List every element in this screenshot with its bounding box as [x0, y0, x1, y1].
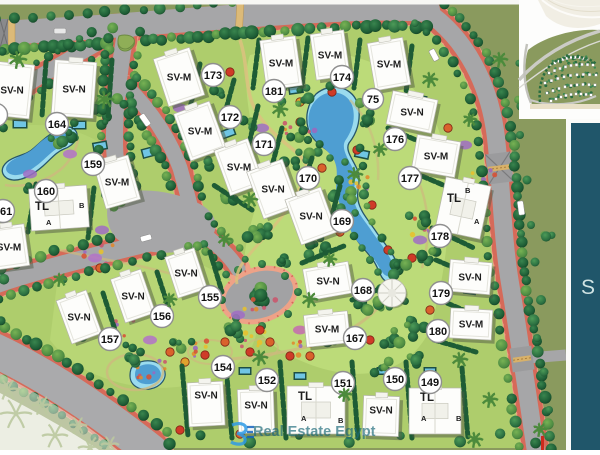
- svg-text:151: 151: [334, 378, 352, 390]
- svg-text:A: A: [474, 217, 480, 226]
- svg-text:SV-N: SV-N: [174, 269, 197, 280]
- svg-text:179: 179: [432, 288, 450, 300]
- svg-text:SV-N: SV-N: [400, 108, 423, 119]
- svg-text:SV-N: SV-N: [261, 185, 284, 196]
- svg-text:SV-M: SV-M: [377, 60, 401, 71]
- svg-text:B: B: [465, 186, 471, 195]
- svg-text:SV-M: SV-M: [424, 152, 448, 163]
- svg-text:SV-M: SV-M: [269, 59, 293, 70]
- svg-text:174: 174: [333, 72, 352, 84]
- svg-text:155: 155: [201, 292, 219, 304]
- svg-text:177: 177: [401, 173, 419, 185]
- svg-text:B: B: [456, 414, 462, 423]
- svg-text:171: 171: [255, 139, 273, 151]
- svg-text:SV-N: SV-N: [121, 292, 144, 303]
- svg-text:SV-N: SV-N: [458, 273, 481, 284]
- svg-text:169: 169: [333, 216, 351, 228]
- svg-text:172: 172: [221, 112, 239, 124]
- svg-text:S: S: [581, 276, 595, 299]
- svg-text:TL: TL: [447, 193, 461, 205]
- svg-text:SV-N: SV-N: [369, 406, 392, 417]
- svg-text:154: 154: [214, 362, 233, 374]
- svg-text:SV-N: SV-N: [244, 401, 267, 412]
- svg-text:B: B: [79, 201, 85, 210]
- svg-text:157: 157: [101, 334, 119, 346]
- svg-text:170: 170: [299, 173, 317, 185]
- svg-text:Real Estate Egypt: Real Estate Egypt: [253, 424, 376, 440]
- svg-text:TL: TL: [298, 391, 312, 403]
- svg-text:181: 181: [265, 86, 283, 98]
- svg-text:SV-M: SV-M: [188, 127, 212, 138]
- svg-text:SV-M: SV-M: [459, 320, 483, 331]
- svg-text:SV-M: SV-M: [167, 73, 191, 84]
- svg-text:SV-N: SV-N: [316, 277, 339, 288]
- svg-text:167: 167: [346, 333, 364, 345]
- svg-text:176: 176: [386, 134, 404, 146]
- svg-text:SV-N: SV-N: [194, 391, 217, 402]
- svg-text:152: 152: [258, 375, 276, 387]
- svg-text:160: 160: [37, 186, 55, 198]
- svg-text:A: A: [301, 414, 307, 423]
- svg-text:150: 150: [386, 374, 404, 386]
- svg-text:SV-N: SV-N: [67, 313, 90, 324]
- svg-text:SV-N: SV-N: [62, 85, 85, 96]
- svg-text:156: 156: [153, 311, 171, 323]
- svg-text:SV-M: SV-M: [0, 243, 21, 254]
- svg-text:173: 173: [204, 70, 222, 82]
- svg-text:180: 180: [429, 326, 447, 338]
- svg-text:149: 149: [421, 377, 439, 389]
- svg-text:SV-M: SV-M: [315, 325, 339, 336]
- svg-text:164: 164: [48, 119, 67, 131]
- svg-text:SV-M: SV-M: [105, 178, 129, 189]
- svg-text:A: A: [421, 414, 427, 423]
- svg-text:SV-M: SV-M: [318, 51, 342, 62]
- svg-text:SV-N: SV-N: [299, 212, 322, 223]
- svg-text:SV-N: SV-N: [0, 86, 23, 97]
- svg-text:161: 161: [0, 206, 12, 218]
- svg-text:A: A: [46, 218, 52, 227]
- svg-text:178: 178: [431, 231, 449, 243]
- svg-text:168: 168: [354, 285, 372, 297]
- svg-text:75: 75: [367, 94, 379, 106]
- svg-text:159: 159: [84, 159, 102, 171]
